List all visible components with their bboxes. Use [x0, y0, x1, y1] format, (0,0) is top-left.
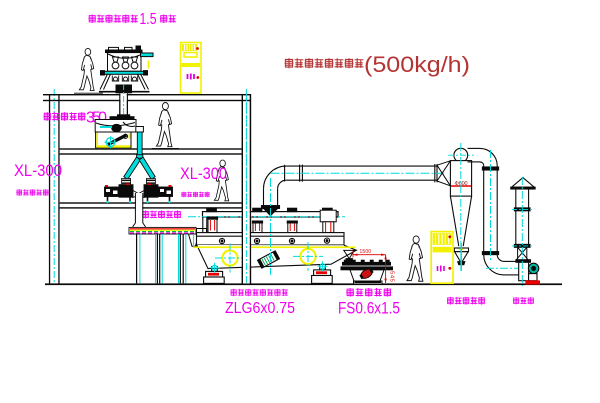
svg-text:FS0.6x1.5: FS0.6x1.5 — [338, 300, 400, 318]
svg-text:XL-300: XL-300 — [14, 161, 62, 180]
svg-text:XL-300: XL-300 — [180, 164, 227, 183]
svg-text:ZLG6x0.75: ZLG6x0.75 — [225, 300, 295, 317]
svg-text:(500kg/h): (500kg/h) — [364, 52, 470, 77]
svg-text:1.5: 1.5 — [140, 11, 157, 28]
svg-text:1500: 1500 — [360, 249, 372, 255]
svg-text:545: 545 — [389, 271, 395, 282]
